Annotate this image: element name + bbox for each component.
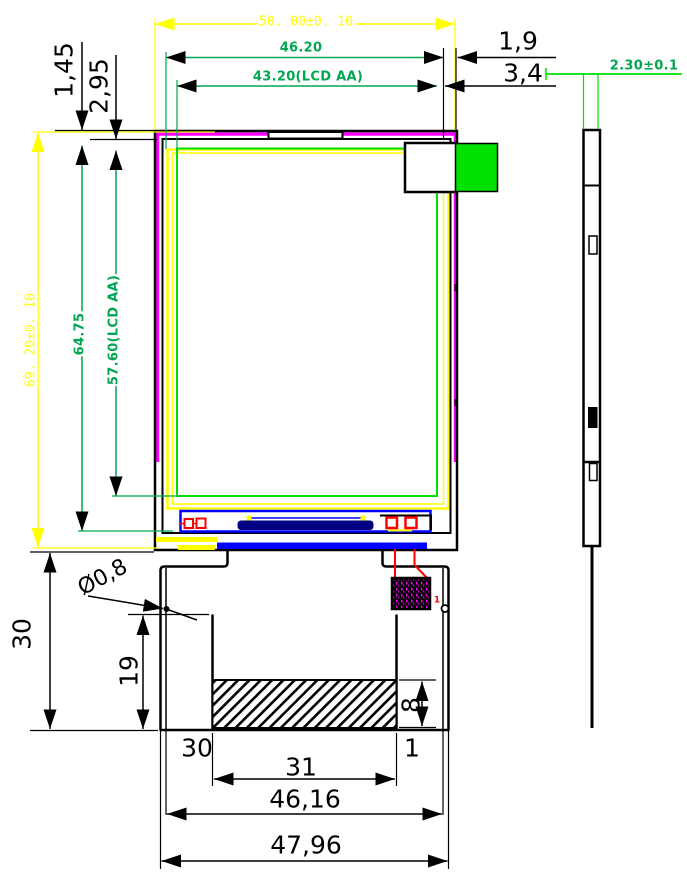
component-ref-1: 1 bbox=[434, 597, 440, 606]
backlight-led bbox=[456, 144, 498, 192]
hole-right bbox=[442, 605, 449, 612]
component-left bbox=[185, 519, 194, 528]
backlight-frame-outer bbox=[168, 150, 449, 509]
dim-fpc-w-4796: 47,96 bbox=[270, 833, 342, 858]
hole-leader bbox=[88, 596, 163, 609]
dim-fpc-w-4616: 46,16 bbox=[269, 787, 341, 812]
alignment-dot bbox=[247, 516, 252, 521]
fpc-stiffener-bar bbox=[217, 543, 427, 550]
backlight-tab bbox=[156, 537, 217, 542]
dim-edge-3-4: 3,4 bbox=[503, 61, 543, 86]
alignment-dot bbox=[361, 516, 366, 521]
edge-tick bbox=[455, 284, 458, 291]
red-trace-2 bbox=[415, 549, 430, 580]
dim-pol-width: 46.20 bbox=[280, 42, 323, 55]
component-right bbox=[387, 518, 398, 529]
front-view bbox=[155, 131, 498, 550]
dim-aa-height: 57.60(LCD AA) bbox=[108, 274, 121, 386]
backlight-tab2 bbox=[178, 545, 215, 550]
dim-fpc-len-30: 30 bbox=[10, 618, 35, 650]
led-window bbox=[405, 143, 457, 192]
edge-tick bbox=[455, 399, 458, 406]
pin-label-1: 1 bbox=[404, 736, 420, 761]
dim-thickness: 2.30±0.1 bbox=[610, 60, 678, 73]
side-detail-2 bbox=[590, 464, 598, 481]
dim-fpc-len-19: 19 bbox=[117, 655, 142, 687]
component-left2 bbox=[197, 519, 206, 529]
dim-edge-1-45: 1,45 bbox=[52, 42, 77, 98]
dim-contact-w-31: 31 bbox=[285, 755, 317, 780]
hole-left bbox=[164, 606, 170, 612]
dim-contact-h-8: 8 bbox=[399, 697, 424, 713]
drawing-canvas bbox=[0, 0, 687, 876]
dim-module-width: 50. 00±0. 10 bbox=[257, 16, 355, 29]
active-area-outline bbox=[177, 149, 437, 497]
bezel-opening bbox=[163, 139, 451, 533]
side-tape bbox=[588, 407, 598, 428]
driver-ic bbox=[238, 521, 374, 531]
side-view bbox=[584, 130, 601, 728]
lcd-outline-drawing: 50. 00±0. 10 46.20 43.20(LCD AA) 1,9 3,4… bbox=[0, 0, 687, 876]
pin-label-30: 30 bbox=[181, 736, 213, 761]
side-detail-1 bbox=[589, 236, 597, 254]
backlight-frame-inner bbox=[173, 153, 444, 504]
module-outline bbox=[155, 131, 457, 550]
top-notch bbox=[269, 132, 343, 139]
dim-pol-height: 64.75 bbox=[74, 312, 87, 357]
component-right2 bbox=[406, 518, 417, 529]
dim-edge-1-9: 1,9 bbox=[498, 29, 538, 54]
dim-aa-width: 43.20(LCD AA) bbox=[253, 71, 363, 84]
contact-area-hatch bbox=[213, 680, 397, 728]
side-body bbox=[584, 130, 601, 546]
connector-pad bbox=[392, 578, 430, 609]
dim-module-height: 69. 20±0. 10 bbox=[25, 291, 38, 389]
dim-edge-2-95: 2,95 bbox=[87, 58, 112, 114]
